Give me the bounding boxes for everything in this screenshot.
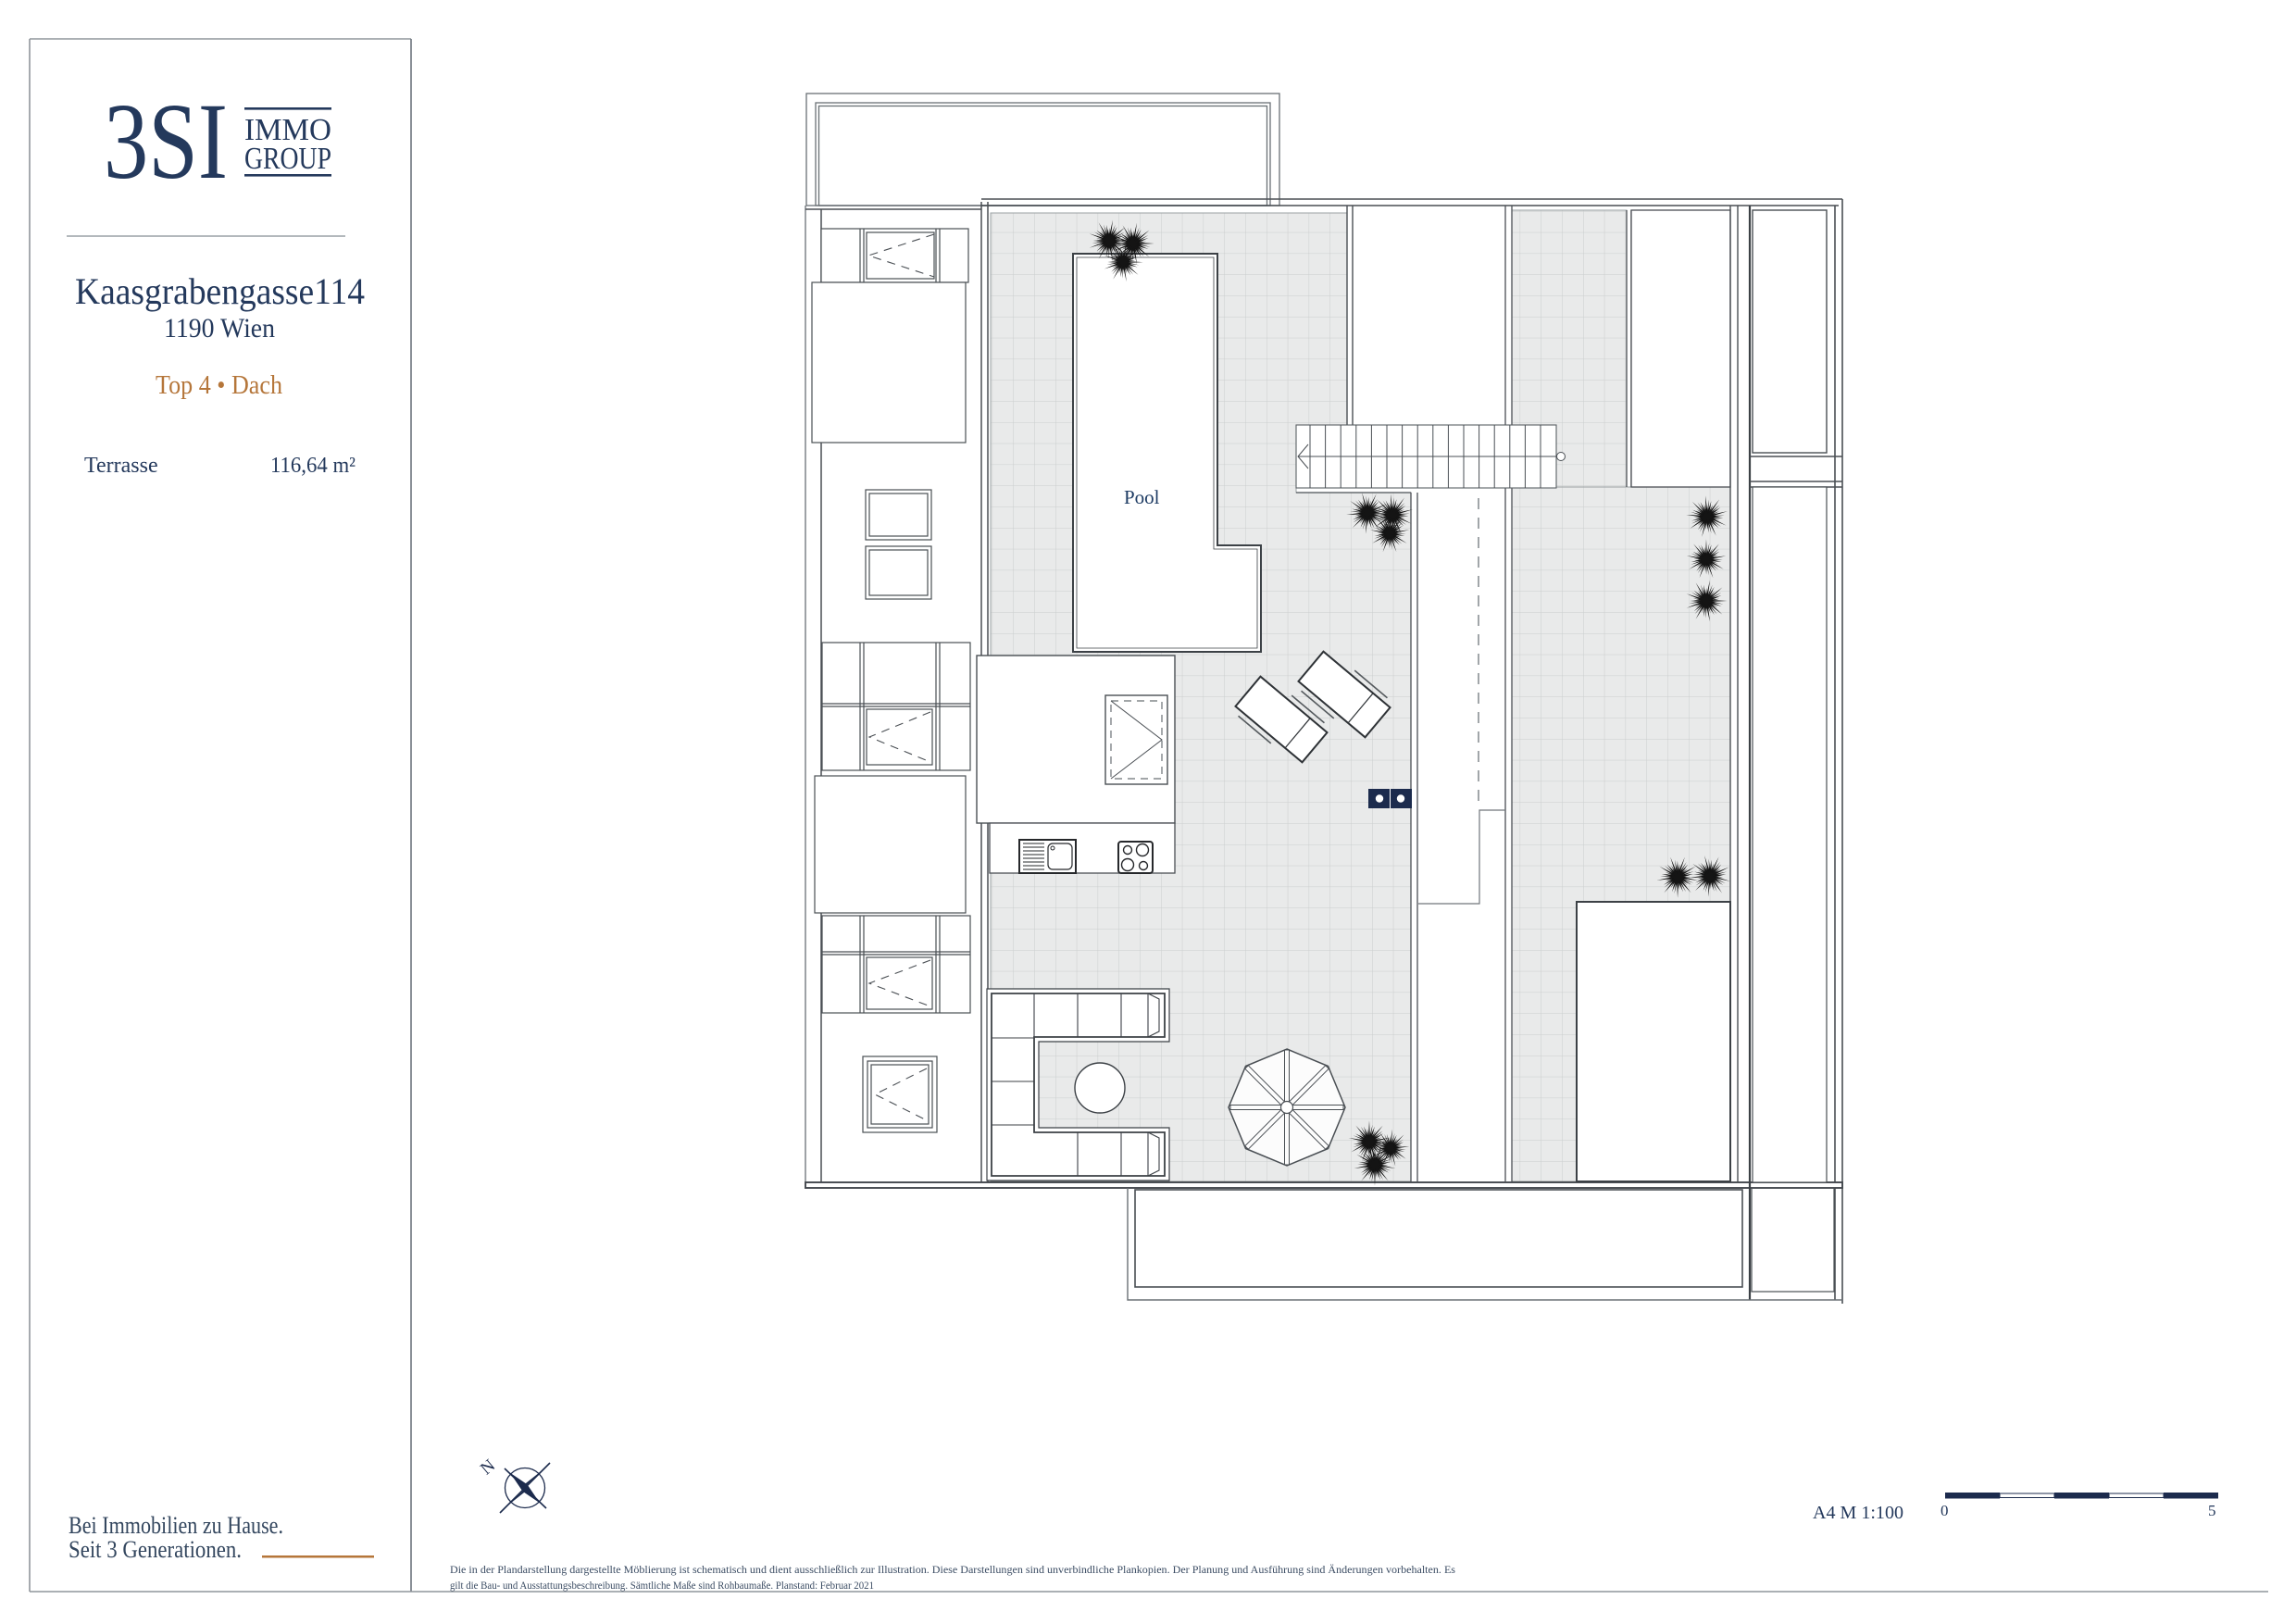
svg-text:3SI: 3SI bbox=[104, 81, 228, 202]
svg-text:A4 M 1:100: A4 M 1:100 bbox=[1813, 1503, 1903, 1523]
svg-text:Kaasgrabengasse114: Kaasgrabengasse114 bbox=[75, 270, 365, 312]
svg-text:Bei Immobilien zu Hause.: Bei Immobilien zu Hause. bbox=[69, 1512, 283, 1539]
svg-text:Seit 3 Generationen.: Seit 3 Generationen. bbox=[69, 1536, 242, 1563]
svg-text:N: N bbox=[477, 1455, 499, 1479]
svg-text:116,64 m²: 116,64 m² bbox=[270, 454, 356, 478]
svg-text:0: 0 bbox=[1940, 1502, 1949, 1519]
svg-text:Top 4 • Dach: Top 4 • Dach bbox=[156, 370, 282, 400]
svg-text:1190 Wien: 1190 Wien bbox=[164, 313, 275, 344]
svg-text:Pool: Pool bbox=[1124, 486, 1160, 508]
svg-text:Die in der Plandarstellung dar: Die in der Plandarstellung dargestellte … bbox=[450, 1563, 1456, 1576]
svg-text:5: 5 bbox=[2208, 1502, 2216, 1519]
svg-text:Terrasse: Terrasse bbox=[84, 454, 158, 478]
svg-text:GROUP: GROUP bbox=[244, 142, 331, 176]
svg-text:gilt die Bau- und Ausstattungs: gilt die Bau- und Ausstattungsbeschreibu… bbox=[450, 1580, 874, 1592]
